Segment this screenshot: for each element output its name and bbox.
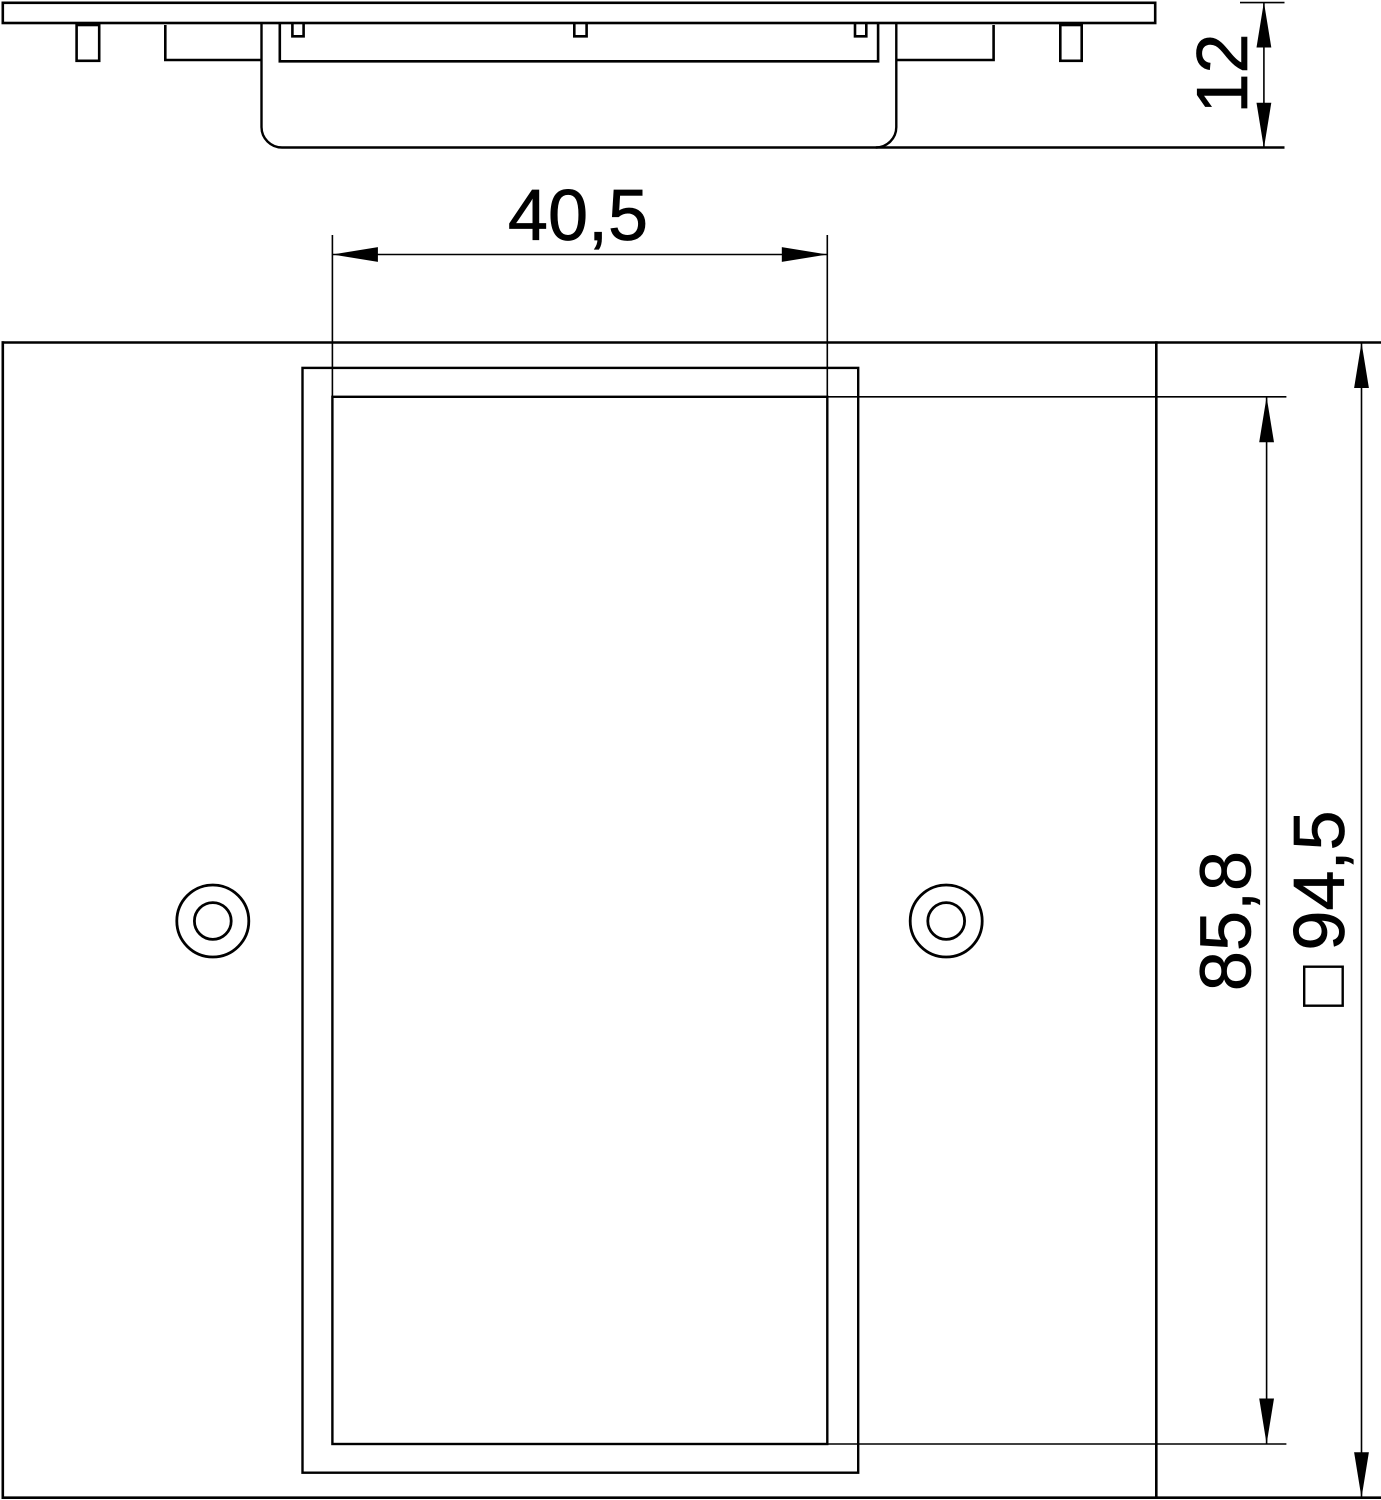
svg-text:12: 12 xyxy=(1183,33,1263,113)
svg-text:85,8: 85,8 xyxy=(1187,851,1267,991)
svg-text:40,5: 40,5 xyxy=(508,176,648,256)
svg-text:94,5: 94,5 xyxy=(1280,810,1360,950)
